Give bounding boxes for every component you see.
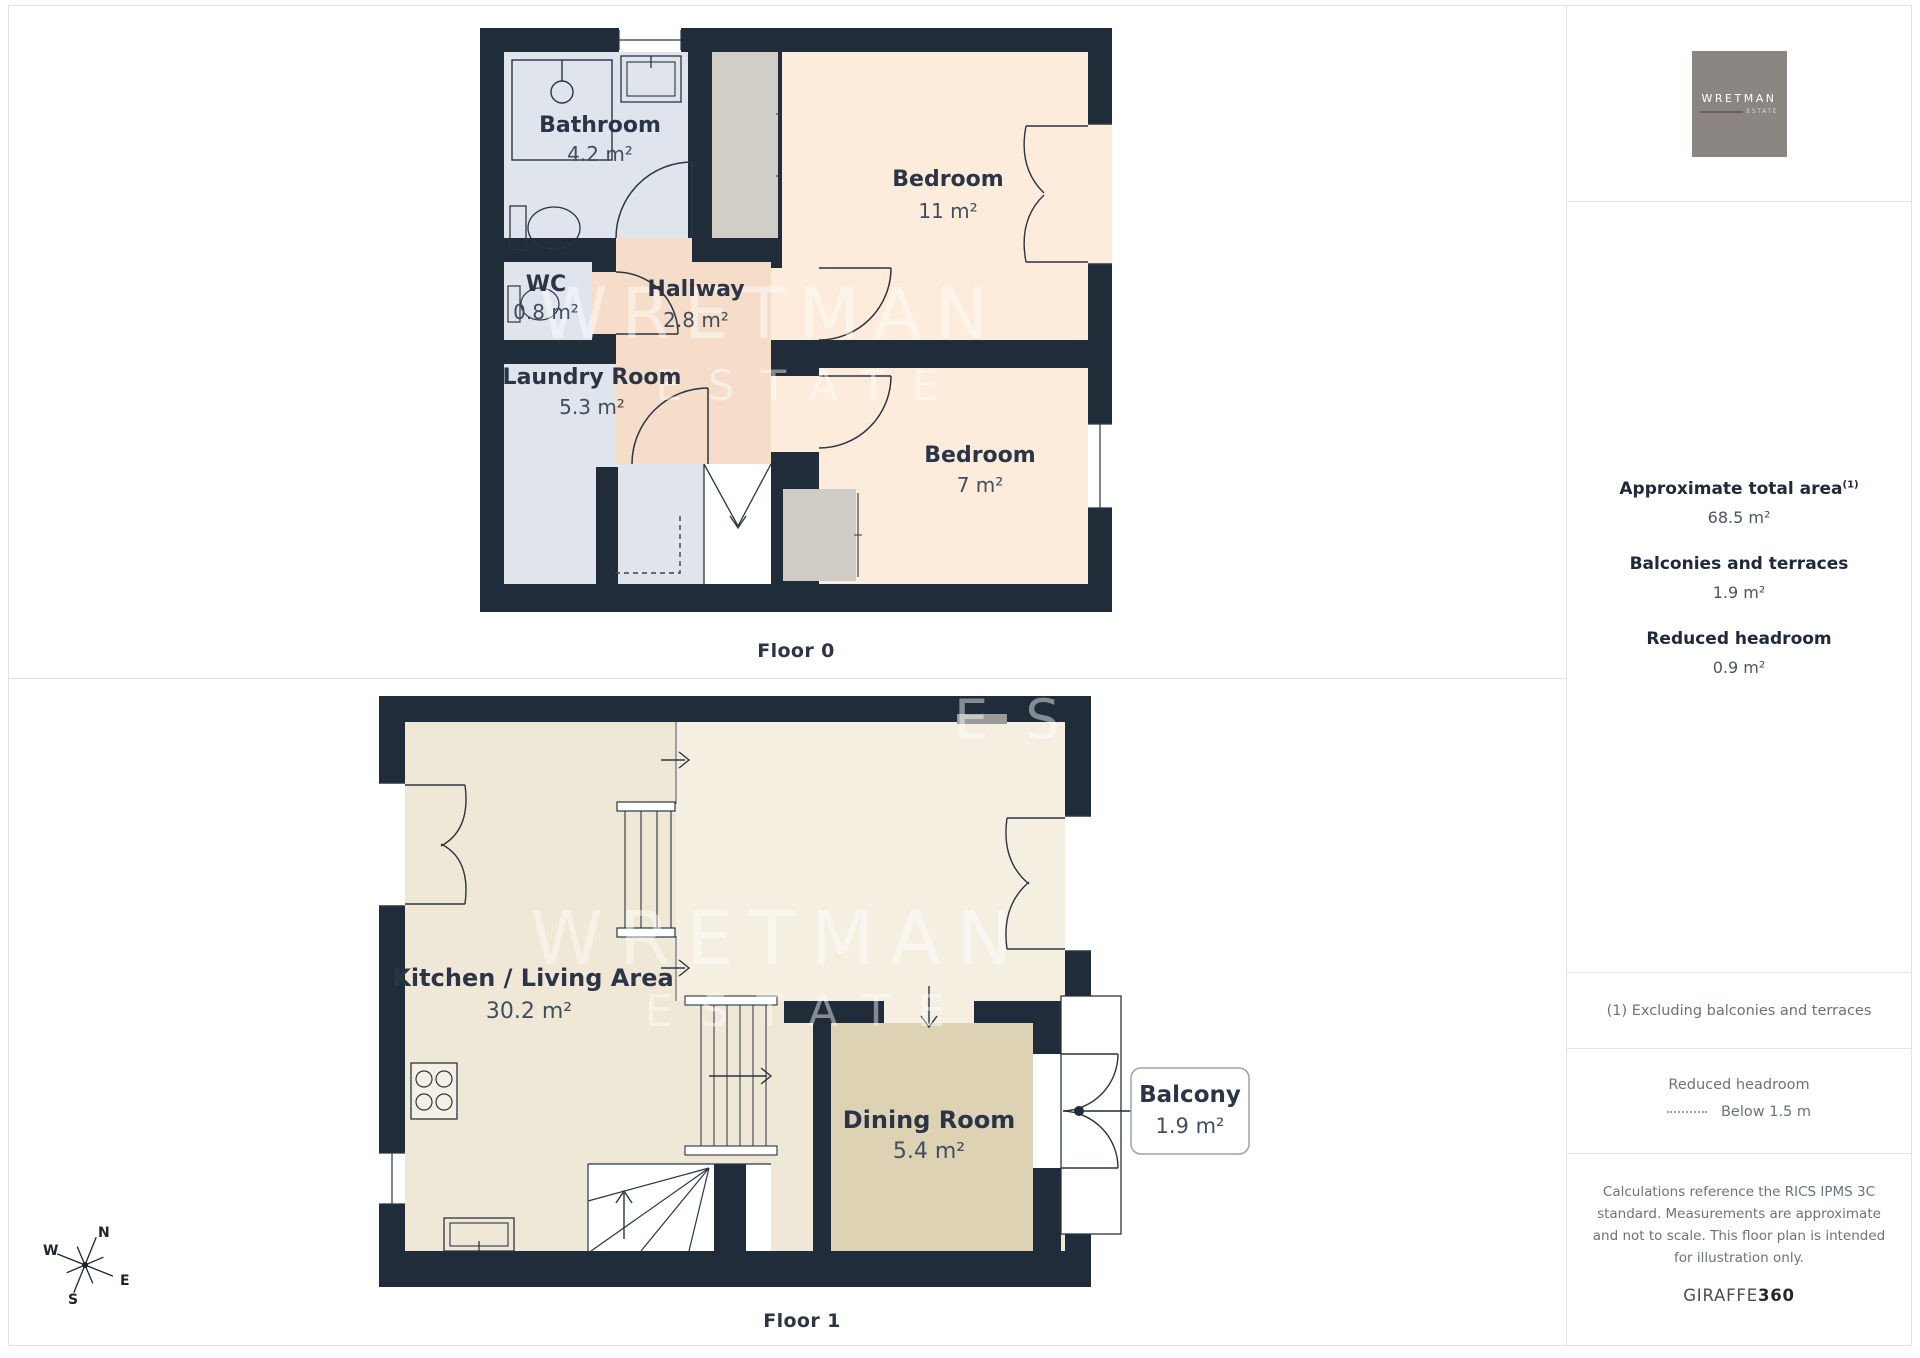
legend-section: Reduced headroom Below 1.5 m: [1567, 1048, 1911, 1153]
footnote-section: (1) Excluding balconies and terraces: [1567, 972, 1911, 1048]
watermark: ESTATE: [655, 361, 964, 410]
stat-value: 68.5 m²: [1567, 508, 1911, 527]
room-label: Bathroom: [539, 113, 661, 138]
dining-left-wall: [813, 1023, 831, 1251]
room-label: Kitchen / Living Area: [392, 964, 673, 992]
closet-top: [712, 52, 778, 238]
room-label: Bedroom: [892, 167, 1003, 192]
stair-cap: [685, 1146, 777, 1155]
room-area: 5.3 m²: [559, 395, 625, 419]
balcony-callout: [1131, 1068, 1249, 1154]
dotted-line-icon: [1667, 1111, 1707, 1113]
stat-value: 1.9 m²: [1567, 583, 1911, 602]
callout-area: 1.9 m²: [1156, 1114, 1225, 1138]
compass-w: W: [43, 1243, 58, 1259]
compass-e: E: [120, 1273, 130, 1289]
summary-sidebar: WRETMAN ESTATE Approximate total area(1)…: [1567, 6, 1911, 1345]
logo-rule: [1700, 111, 1743, 113]
logo-sub-text: ESTATE: [1747, 108, 1779, 115]
stat-label-text: Reduced headroom: [1646, 629, 1831, 649]
giraffe-360-text: 360: [1758, 1286, 1795, 1305]
room-label: Dining Room: [843, 1106, 1016, 1134]
stat-total-area: Approximate total area(1) 68.5 m²: [1567, 479, 1911, 527]
legend-item-text: Below 1.5 m: [1721, 1104, 1811, 1120]
floor-0-plan: WRETMAN ESTATE Bathroom 4.2 m² WC 0.8 m²…: [480, 28, 1112, 612]
room-area: 5.4 m²: [893, 1139, 965, 1164]
logo-brand-text: WRETMAN: [1702, 92, 1777, 105]
balcony-door-gap: [1033, 1054, 1061, 1168]
floorplan-page: WRETMAN ESTATE Bathroom 4.2 m² WC 0.8 m²…: [8, 5, 1912, 1346]
closet-bedroom-small: [783, 489, 856, 581]
stair-wall-stub: [714, 1164, 746, 1251]
stat-label-text: Balconies and terraces: [1630, 554, 1849, 574]
disclaimer-section: Calculations reference the RICS IPMS 3C …: [1567, 1153, 1911, 1305]
floor-1-plan: Balcony 1.9 m²: [379, 696, 1259, 1296]
footnote-text: (1) Excluding balconies and terraces: [1607, 1003, 1872, 1019]
balcony: [1061, 996, 1121, 1234]
room-area: 4.2 m²: [567, 142, 633, 166]
disclaimer-text: Calculations reference the RICS IPMS 3C …: [1591, 1182, 1887, 1269]
stat-label: Reduced headroom: [1567, 629, 1911, 649]
room-area: 0.8 m²: [513, 300, 579, 324]
stat-label: Approximate total area(1): [1567, 479, 1911, 499]
room-area: 2.8 m²: [663, 308, 729, 332]
french-door-gap: [1088, 124, 1112, 264]
hob-icon: [411, 1063, 457, 1119]
floor-0-label: Floor 0: [480, 640, 1112, 662]
dining-right-wall-a: [1033, 1001, 1061, 1054]
room-label: Hallway: [647, 277, 744, 302]
compass-s: S: [68, 1292, 78, 1308]
room-dining: [831, 1023, 1033, 1251]
compass-icon: N W E S: [35, 1201, 165, 1331]
laundry-wall-stub: [596, 467, 618, 584]
stat-reduced-headroom: Reduced headroom 0.9 m²: [1567, 629, 1911, 677]
floor-1-label: Floor 1: [379, 1310, 1225, 1332]
french-door-gap: [1065, 816, 1091, 951]
stat-label-text: Approximate total area: [1619, 479, 1842, 499]
room-area: 30.2 m²: [486, 999, 572, 1024]
giraffe-text: GIRAFFE: [1683, 1286, 1758, 1305]
room-label: Bedroom: [924, 443, 1035, 468]
callout-title: Balcony: [1139, 1082, 1241, 1108]
dining-right-wall-b: [1033, 1168, 1061, 1251]
stat-footnote-marker: (1): [1843, 479, 1859, 490]
compass-center: [82, 1262, 88, 1268]
legend-row: Below 1.5 m: [1567, 1104, 1911, 1120]
area-stats-section: Approximate total area(1) 68.5 m² Balcon…: [1567, 202, 1911, 972]
plans-area: WRETMAN ESTATE Bathroom 4.2 m² WC 0.8 m²…: [9, 6, 1567, 1345]
compass-n: N: [98, 1225, 110, 1241]
room-laundry-b: [616, 464, 704, 584]
stat-balconies: Balconies and terraces 1.9 m²: [1567, 554, 1911, 602]
logo-section: WRETMAN ESTATE: [1567, 6, 1911, 202]
french-door-gap: [379, 783, 405, 906]
hallway-door-gap: [616, 238, 692, 262]
agency-logo: WRETMAN ESTATE: [1692, 51, 1787, 157]
watermark: WRETMAN: [538, 273, 1001, 355]
room-label: WC: [526, 272, 566, 297]
stat-value: 0.9 m²: [1567, 658, 1911, 677]
watermark: E S T: [954, 696, 1140, 751]
room-area: 7 m²: [957, 473, 1004, 497]
legend-title: Reduced headroom: [1567, 1077, 1911, 1093]
watermark: ESTATE: [645, 986, 974, 1037]
room-label: Laundry Room: [503, 365, 682, 390]
logo-sub-row: ESTATE: [1700, 108, 1778, 115]
railing-cap: [617, 802, 675, 811]
giraffe360-brand: GIRAFFE360: [1591, 1286, 1887, 1305]
room-area: 11 m²: [918, 199, 977, 223]
stat-label: Balconies and terraces: [1567, 554, 1911, 574]
callout-anchor-dot: [1074, 1106, 1084, 1116]
